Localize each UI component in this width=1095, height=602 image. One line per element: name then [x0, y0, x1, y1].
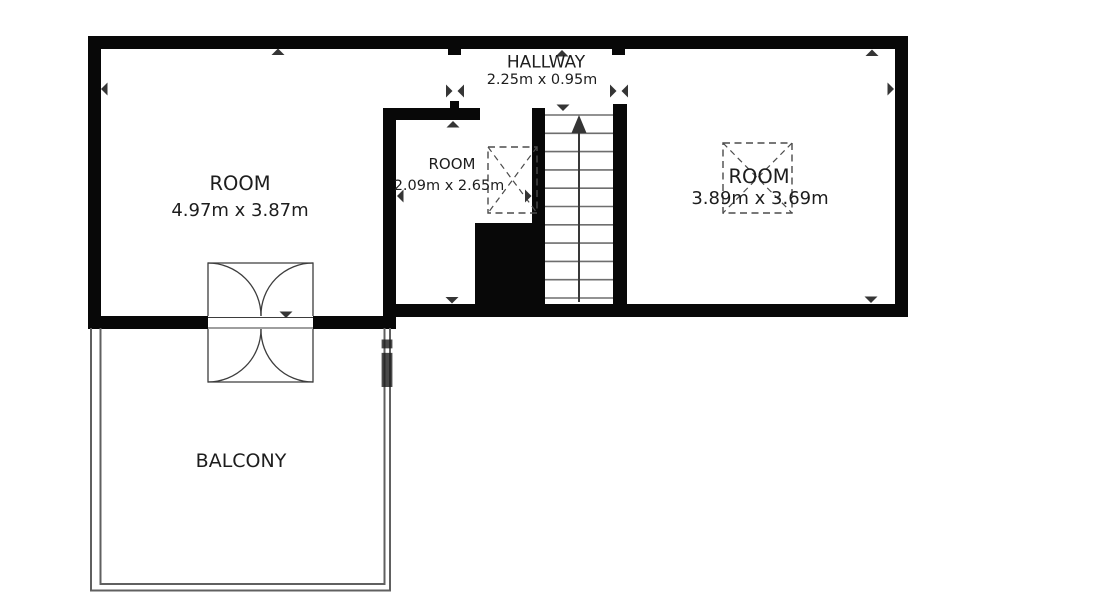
- staircase: [545, 115, 613, 302]
- floor-plan-svg: i HALLWAY 2.25m x 0.95m ROOM 4.97m x 3.8…: [0, 0, 1095, 602]
- wall-bottom-right: [390, 304, 908, 317]
- dimension-tick-icon: [101, 83, 108, 96]
- wall-jamb-middle-top: [450, 101, 459, 109]
- hallway-dimensions: 2.25m x 0.95m: [487, 72, 598, 88]
- balcony-label: BALCONY: [196, 450, 287, 472]
- wall-jamb-hallway-right: [612, 49, 625, 55]
- wall-middle-room-west: [383, 108, 396, 329]
- dimension-tick-icon: [866, 50, 879, 57]
- room-middle-label: ROOM: [429, 155, 476, 173]
- void-block: [475, 223, 545, 311]
- wall-jamb-hallway-left: [448, 49, 461, 55]
- watermark-letter: i: [376, 329, 397, 402]
- arrow-up-icon: [572, 115, 587, 133]
- door-swing-arc: [261, 263, 313, 316]
- hallway-label: HALLWAY: [507, 53, 586, 73]
- room-left-dimensions: 4.97m x 3.87m: [171, 200, 308, 221]
- dimension-tick-icon: [447, 121, 460, 128]
- dimension-tick-icon: [446, 297, 459, 304]
- room-right-label: ROOM: [728, 165, 789, 188]
- dimension-tick-icon: [865, 297, 878, 304]
- wall-right: [895, 36, 908, 317]
- wall-middle-room-top: [383, 108, 480, 120]
- wall-left: [88, 36, 101, 329]
- wall-top: [88, 36, 908, 49]
- wall-stair-left: [532, 108, 545, 223]
- door-swing-arc: [261, 329, 313, 382]
- door-swing-arc: [208, 263, 261, 316]
- wall-stair-right: [613, 104, 627, 317]
- dimension-tick-icon: [622, 85, 629, 98]
- dimension-tick-icon: [446, 85, 453, 98]
- dimension-tick-icon: [888, 83, 895, 96]
- dimension-tick-icon: [610, 85, 617, 98]
- dimension-tick-icon: [557, 105, 570, 112]
- dimension-tick-icon: [272, 49, 285, 56]
- room-left-label: ROOM: [209, 172, 270, 195]
- room-middle-dimensions: 2.09m x 2.65m: [394, 178, 505, 194]
- room-right-dimensions: 3.89m x 3.69m: [691, 188, 828, 209]
- wall-bottom-left-a: [88, 316, 208, 329]
- double-swing-door-icon: [208, 263, 313, 382]
- dimension-tick-icon: [458, 85, 465, 98]
- door-swing-arc: [208, 329, 261, 382]
- floor-plan-canvas: i HALLWAY 2.25m x 0.95m ROOM 4.97m x 3.8…: [0, 0, 1095, 602]
